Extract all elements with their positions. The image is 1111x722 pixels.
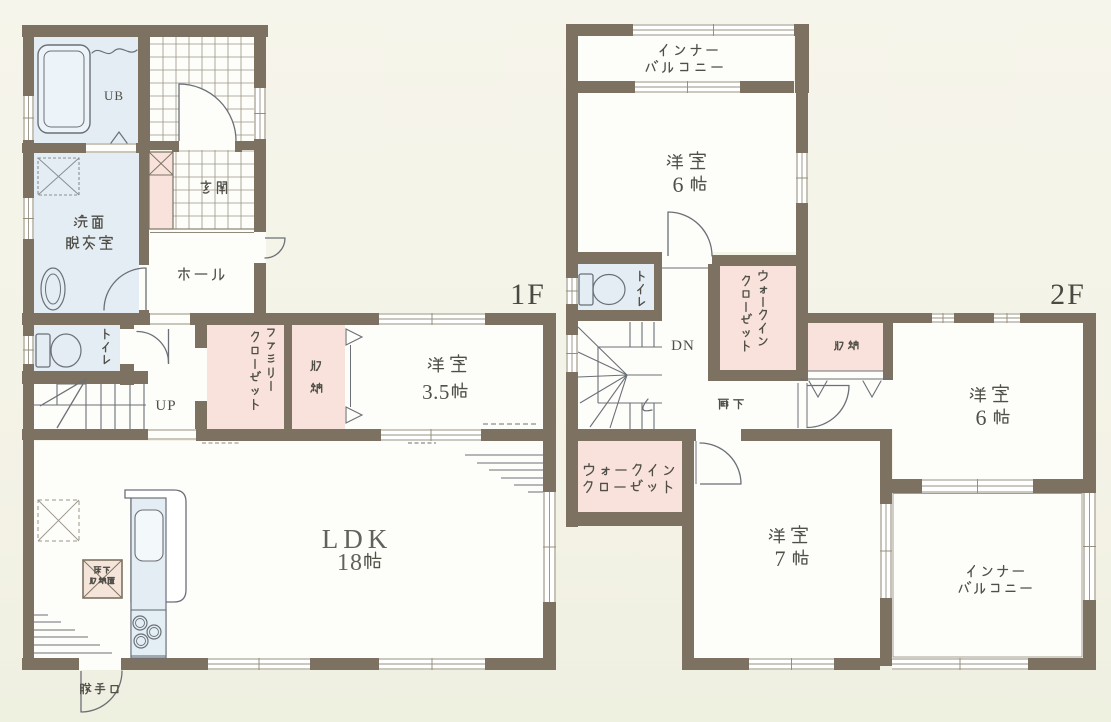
- svg-text:6: 6: [673, 172, 684, 197]
- svg-text:UP: UP: [155, 398, 176, 414]
- svg-text:DN: DN: [671, 338, 695, 354]
- svg-text:18: 18: [337, 550, 363, 576]
- svg-text:UB: UB: [104, 88, 124, 103]
- svg-text:3.5: 3.5: [422, 380, 450, 404]
- svg-text:2F: 2F: [1050, 278, 1086, 311]
- svg-text:6: 6: [976, 405, 987, 430]
- svg-text:7: 7: [775, 546, 786, 571]
- svg-text:1F: 1F: [510, 278, 546, 311]
